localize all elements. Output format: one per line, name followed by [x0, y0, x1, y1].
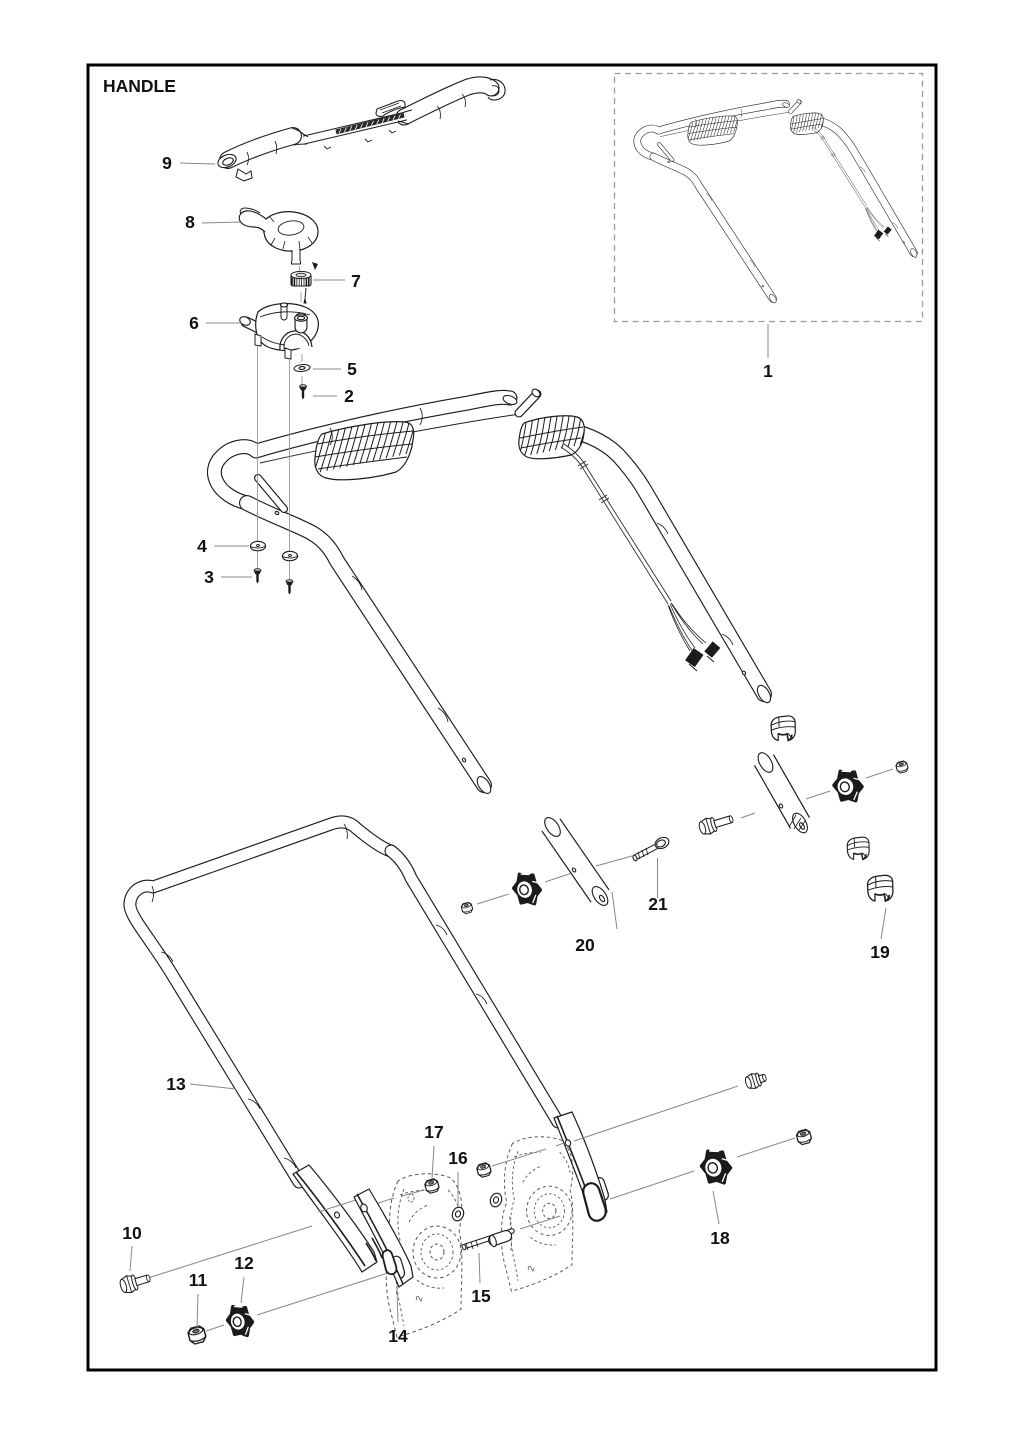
svg-text:8: 8 [185, 212, 195, 232]
svg-text:1: 1 [763, 361, 773, 381]
svg-text:17: 17 [424, 1122, 443, 1142]
svg-text:20: 20 [575, 935, 595, 955]
svg-text:7: 7 [351, 271, 361, 291]
svg-text:12: 12 [234, 1253, 254, 1273]
svg-text:10: 10 [122, 1223, 142, 1243]
svg-text:9: 9 [162, 153, 172, 173]
svg-text:6: 6 [189, 313, 199, 333]
svg-text:21: 21 [648, 894, 668, 914]
svg-text:2: 2 [344, 386, 354, 406]
svg-text:4: 4 [197, 536, 207, 556]
svg-text:3: 3 [204, 567, 214, 587]
svg-text:18: 18 [710, 1228, 730, 1248]
svg-text:11: 11 [189, 1270, 208, 1290]
svg-text:13: 13 [166, 1074, 186, 1094]
svg-text:14: 14 [388, 1326, 408, 1346]
svg-text:19: 19 [870, 942, 890, 962]
svg-text:15: 15 [471, 1286, 491, 1306]
svg-text:16: 16 [448, 1148, 468, 1168]
svg-text:5: 5 [347, 359, 357, 379]
svg-text:HANDLE: HANDLE [103, 76, 176, 96]
